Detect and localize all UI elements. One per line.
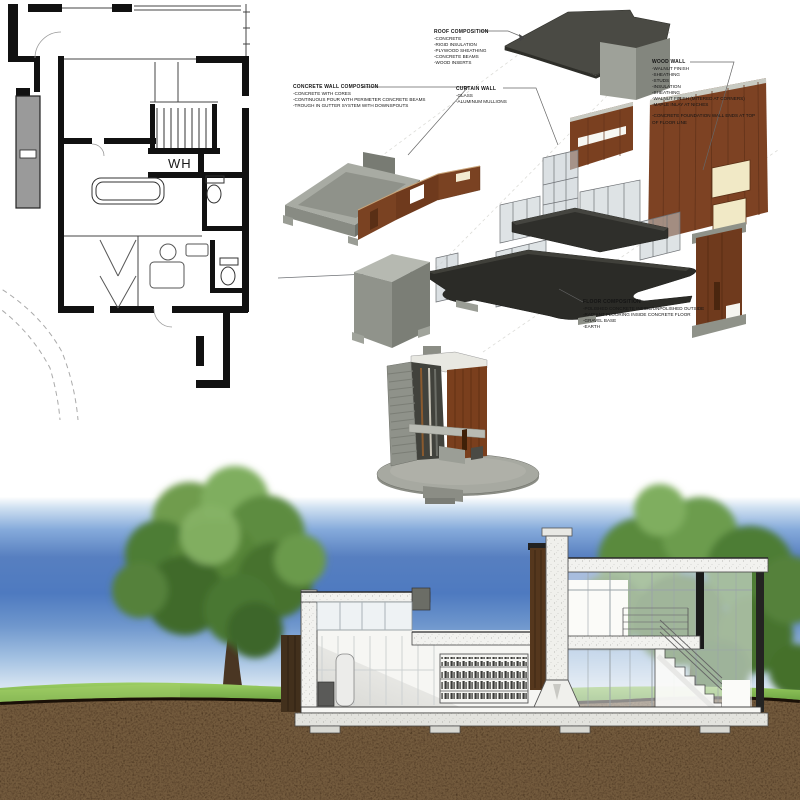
annotation-item: -CONCRETE FOUNDATION WALL ENDS AT TOP OF… [652, 113, 760, 125]
stair-nook [722, 680, 750, 710]
plan-site-lines [0, 285, 78, 420]
annotation-items: -GLASS-ALUMINUM MULLIONS [456, 93, 507, 105]
annotation-items: -CONCRETE WITH CORES-CONTINUOUS POUR WIT… [293, 91, 425, 109]
floor-plan: WH [0, 0, 265, 420]
stair-treads [157, 108, 206, 148]
retaining-wood-wall [281, 635, 301, 712]
column [336, 654, 354, 706]
annotation-item: -WOOD INSERTS [434, 60, 489, 66]
annotation-roof-composition: ROOF COMPOSITION -CONCRETE-RIGID INSULAT… [434, 29, 489, 66]
annotation-floor-composition: FLOOR COMPOSITION -POLISHED CONCRETE INS… [583, 299, 704, 330]
building-render [365, 338, 550, 513]
wood-wall-notch [471, 446, 483, 460]
exploded-axonometric [278, 0, 800, 360]
annotation-items: -CONCRETE-RIGID INSULATION-PLYWOOD SHEAT… [434, 36, 489, 66]
annotation-items: -POLISHED CONCRETE INSIDE/UNPOLISHED OUT… [583, 306, 704, 330]
bookshelf [440, 654, 528, 703]
plan-walls [8, 4, 249, 388]
furniture [150, 244, 208, 288]
annotation-title: ROOF COMPOSITION [434, 29, 489, 35]
ground-floor-slab [301, 707, 761, 713]
annotation-item: -ALUMINUM MULLIONS [456, 99, 507, 105]
annotation-title: CONCRETE WALL COMPOSITION [293, 84, 425, 90]
toilet-bowl [207, 185, 221, 203]
roof-plate [505, 10, 670, 100]
annotation-title: WOOD WALL [652, 59, 760, 65]
presentation-board: WH [0, 0, 800, 800]
walnut-niche-wall [570, 102, 633, 170]
annotation-item: -TROUGH IN GUTTER SYSTEM WITH DOWNSPOUTS [293, 103, 425, 109]
gutter-cap [412, 588, 430, 610]
annotation-title: CURTAIN WALL [456, 86, 507, 92]
annotation-items: -WALNUT FINISH-SHEATHING-STUDS-INSULATIO… [652, 66, 760, 126]
cabinet [318, 682, 334, 706]
water-heater-label: WH [168, 156, 192, 171]
annotation-curtain-wall: CURTAIN WALL -GLASS-ALUMINUM MULLIONS [456, 86, 507, 105]
annotation-item: -EARTH [583, 324, 704, 330]
annotation-concrete-wall-composition: CONCRETE WALL COMPOSITION -CONCRETE WITH… [293, 84, 425, 109]
upper-wall-panel [568, 580, 628, 636]
tree-canopy [112, 466, 326, 658]
building-section [281, 528, 768, 733]
annotation-wood-wall: WOOD WALL -WALNUT FINISH-SHEATHING-STUDS… [652, 59, 760, 126]
plan-thin-lines [58, 4, 250, 306]
closet-doors [100, 240, 136, 308]
elevator-shaft [16, 96, 40, 208]
concrete-corner-wall [352, 254, 430, 348]
wood-wall-slot [462, 429, 467, 451]
section-wood-wall [530, 548, 546, 690]
clerestory-glazing [317, 602, 412, 630]
annotation-title: FLOOR COMPOSITION [583, 299, 704, 305]
render-tower [387, 346, 487, 466]
right-edge-wall [756, 560, 764, 712]
